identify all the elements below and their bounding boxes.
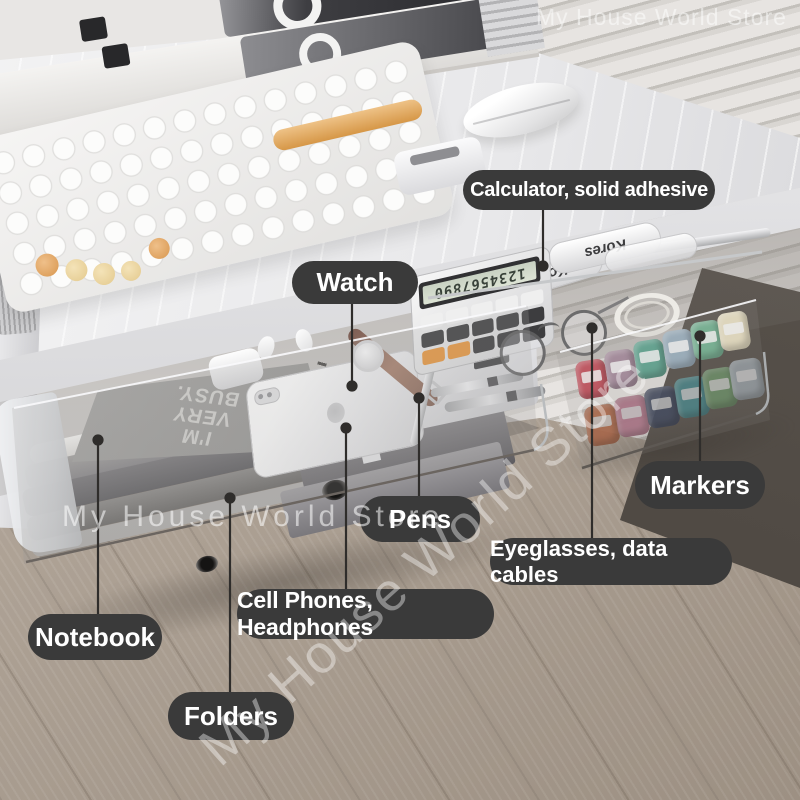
- callout-label: Notebook: [35, 622, 155, 653]
- callout-label: Calculator, solid adhesive: [470, 179, 708, 202]
- callout-label: Watch: [316, 267, 393, 298]
- binder-clip: [79, 16, 108, 42]
- callout-notebook: Notebook: [28, 614, 162, 660]
- callout-pens: Pens: [360, 496, 480, 542]
- callout-label: Eyeglasses, data cables: [490, 536, 732, 588]
- mouse-seam: [473, 99, 570, 125]
- eyeglasses-bridge: [537, 321, 561, 340]
- callout-markers: Markers: [635, 461, 765, 509]
- callout-calculator-adhesive: Calculator, solid adhesive: [463, 170, 715, 210]
- binder-clip: [101, 43, 130, 69]
- dock-slab: [409, 146, 460, 166]
- callout-folders: Folders: [168, 692, 294, 740]
- callout-label: Markers: [650, 470, 750, 501]
- callout-watch: Watch: [292, 261, 418, 304]
- callout-eyeglasses-cables: Eyeglasses, data cables: [490, 538, 732, 585]
- product-photo-scene: I'M VERY BUSY. 1234567890 Kores Kores: [0, 0, 800, 800]
- callout-label: Cell Phones, Headphones: [237, 587, 494, 641]
- callout-cellphones-headphones: Cell Phones, Headphones: [237, 589, 494, 639]
- callout-label: Folders: [184, 701, 278, 732]
- callout-label: Pens: [389, 504, 451, 535]
